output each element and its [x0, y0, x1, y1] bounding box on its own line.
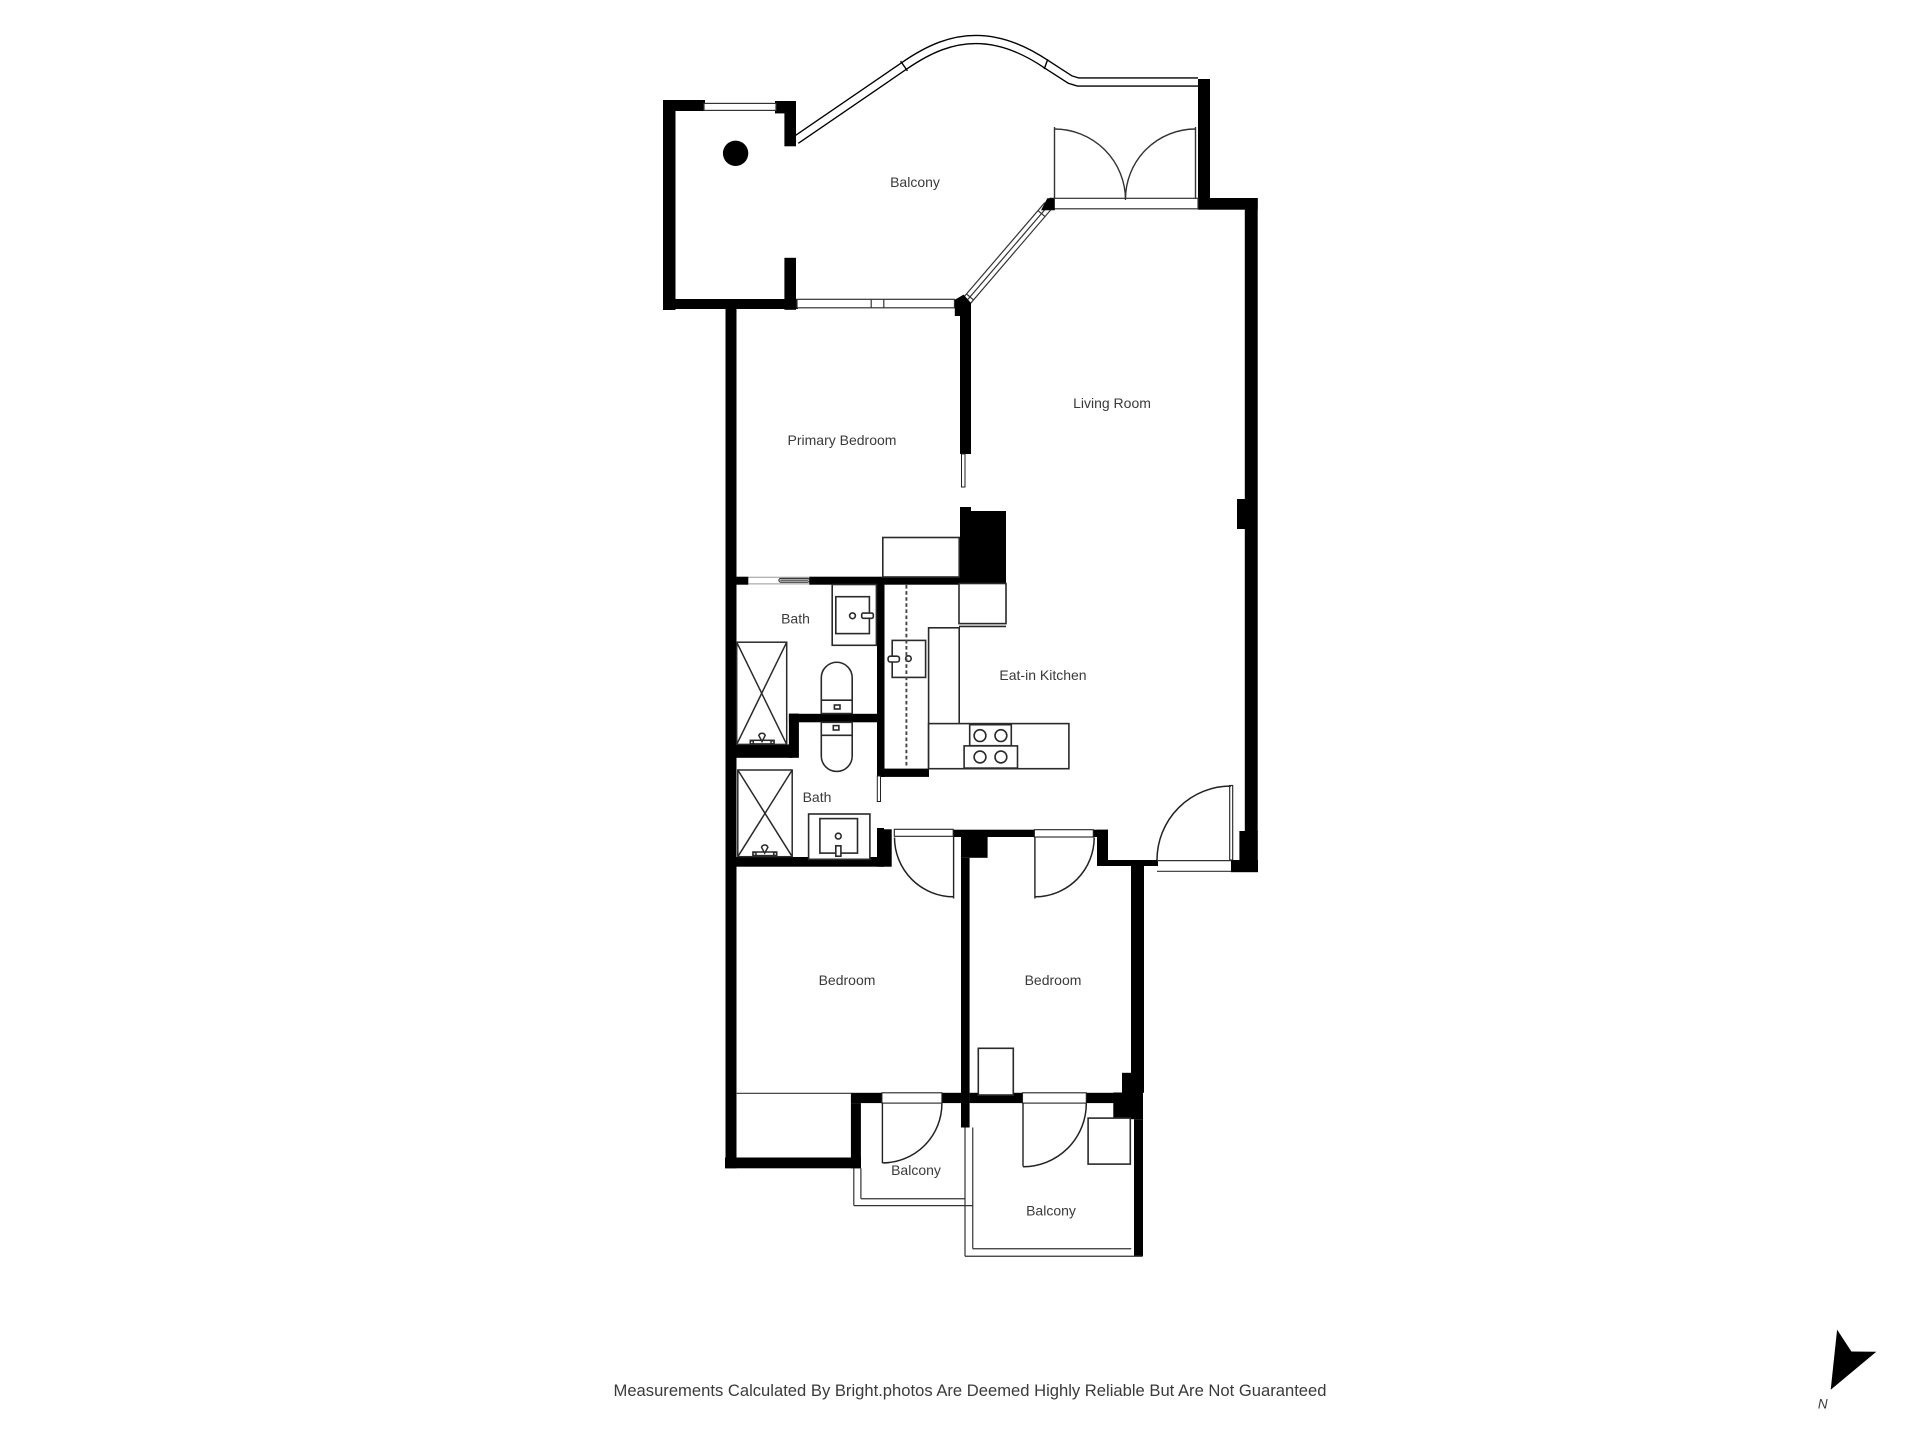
- svg-text:Bedroom: Bedroom: [1025, 972, 1082, 988]
- svg-text:Balcony: Balcony: [891, 1162, 941, 1178]
- svg-text:Measurements Calculated By Bri: Measurements Calculated By Bright.photos…: [614, 1381, 1327, 1400]
- svg-text:Balcony: Balcony: [890, 174, 940, 190]
- svg-text:Balcony: Balcony: [1026, 1203, 1076, 1219]
- svg-text:N: N: [1818, 1397, 1828, 1412]
- svg-text:Living Room: Living Room: [1073, 395, 1151, 411]
- svg-text:Bath: Bath: [803, 789, 832, 805]
- svg-text:Eat-in Kitchen: Eat-in Kitchen: [999, 667, 1086, 683]
- svg-text:Bath: Bath: [781, 611, 810, 627]
- svg-text:Primary Bedroom: Primary Bedroom: [788, 432, 897, 448]
- svg-text:Bedroom: Bedroom: [819, 972, 876, 988]
